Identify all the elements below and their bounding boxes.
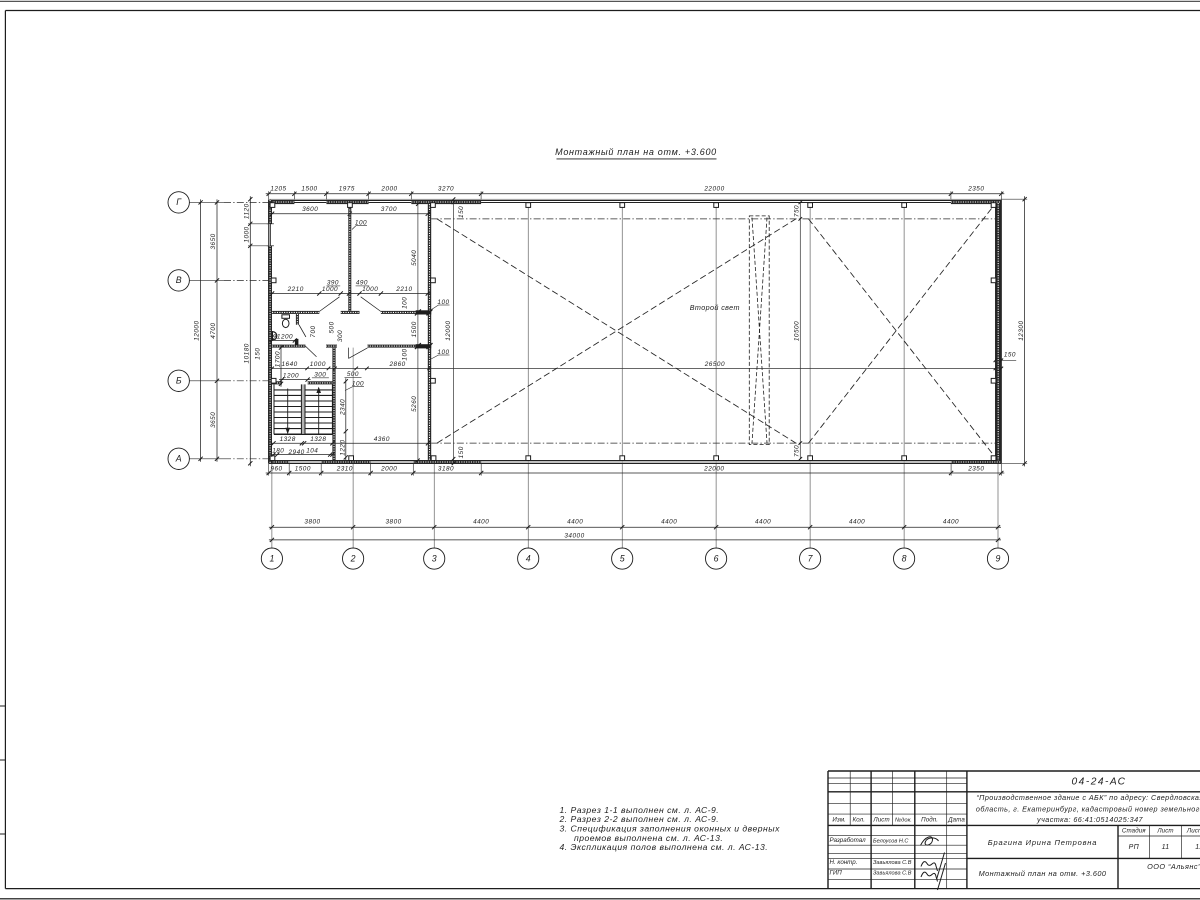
svg-text:2860: 2860 [388,361,405,368]
svg-text:5040: 5040 [411,250,418,266]
svg-text:750: 750 [794,205,801,217]
svg-text:Разработал: Разработал [830,837,867,844]
svg-text:150: 150 [458,446,465,458]
svg-text:3270: 3270 [438,186,454,193]
svg-text:2: 2 [350,553,356,563]
svg-text:4400: 4400 [473,518,489,525]
svg-text:6: 6 [714,553,719,563]
svg-text:4: 4 [526,553,531,563]
svg-text:390: 390 [327,279,339,286]
svg-text:Н. контр.: Н. контр. [830,859,858,866]
svg-text:1000: 1000 [362,286,378,293]
svg-text:100: 100 [401,348,408,360]
svg-text:1500: 1500 [301,186,317,193]
svg-text:100: 100 [437,349,449,356]
svg-text:100: 100 [352,380,364,387]
svg-text:1120: 1120 [243,203,250,219]
svg-text:1205: 1205 [270,186,286,193]
svg-text:Белоусов Н.С: Белоусов Н.С [873,838,909,844]
svg-text:2940: 2940 [287,449,304,456]
svg-text:2340: 2340 [339,399,346,416]
svg-text:Дата: Дата [947,817,965,824]
svg-text:150: 150 [458,206,465,218]
svg-text:Монтажный план на отм. +3.600: Монтажный план на отм. +3.600 [555,147,717,157]
svg-text:34000: 34000 [564,533,584,540]
svg-text:1: 1 [269,553,274,563]
svg-text:2350: 2350 [967,466,984,473]
svg-text:4360: 4360 [374,436,390,443]
svg-text:РП: РП [1129,844,1140,851]
svg-text:область, г. Екатеринбург, када: область, г. Екатеринбург, кадастровый но… [976,805,1200,814]
svg-text:1220: 1220 [339,439,346,455]
svg-text:1000: 1000 [310,361,326,368]
svg-text:4400: 4400 [661,518,677,525]
svg-text:4400: 4400 [567,518,583,525]
svg-text:150: 150 [255,348,262,360]
svg-text:2000: 2000 [380,186,397,193]
svg-text:3800: 3800 [304,518,320,525]
svg-text:2210: 2210 [287,286,304,293]
svg-text:2350: 2350 [967,186,984,193]
svg-text:ГИП: ГИП [830,870,843,877]
svg-text:Стадия: Стадия [1122,827,1146,834]
svg-text:3: 3 [432,553,437,563]
svg-text:9: 9 [996,553,1001,563]
svg-text:1640: 1640 [281,361,297,368]
svg-text:100: 100 [401,297,408,309]
svg-text:8: 8 [902,553,907,563]
svg-text:Монтажный план на отм. +3.600: Монтажный план на отм. +3.600 [979,869,1107,878]
svg-text:“Производственное здание с АБК: “Производственное здание с АБК” по адрес… [976,793,1200,802]
svg-text:Лист: Лист [872,817,889,824]
svg-text:10180: 10180 [243,343,250,363]
svg-text:Завьялова С.В: Завьялова С.В [873,871,912,877]
svg-text:2310: 2310 [336,466,353,473]
svg-text:500: 500 [328,321,335,333]
svg-text:Подп.: Подп. [921,817,938,824]
svg-text:3600: 3600 [302,206,318,213]
svg-text:104: 104 [306,447,318,454]
svg-text:700: 700 [310,325,317,337]
svg-text:Второй свет: Второй свет [690,303,740,312]
svg-text:3800: 3800 [385,518,401,525]
svg-text:№док.: №док. [895,817,912,823]
svg-text:3700: 3700 [381,206,397,213]
svg-text:2000: 2000 [380,466,397,473]
svg-text:12000: 12000 [445,320,452,340]
svg-text:11: 11 [1162,844,1170,851]
svg-text:10500: 10500 [794,321,801,341]
svg-text:Завьялова С.В: Завьялова С.В [873,860,912,866]
svg-text:1700: 1700 [274,351,281,367]
svg-text:4400: 4400 [943,518,959,525]
svg-text:ООО “Альянс”: ООО “Альянс” [1147,862,1200,871]
svg-text:4400: 4400 [755,518,771,525]
svg-text:960: 960 [270,466,282,473]
svg-text:1200: 1200 [283,373,299,380]
svg-text:5: 5 [620,553,625,563]
svg-text:04-24-АС: 04-24-АС [1071,776,1126,787]
svg-text:4. Экспликация полов выполнена: 4. Экспликация полов выполнена см. л. АС… [560,842,769,852]
svg-text:3180: 3180 [438,466,454,473]
svg-text:22000: 22000 [703,466,724,473]
svg-text:150: 150 [1004,352,1016,359]
svg-text:1328: 1328 [310,436,326,443]
svg-text:100: 100 [437,299,449,306]
svg-text:1328: 1328 [280,436,296,443]
svg-text:Изм.: Изм. [832,817,846,824]
svg-text:Лист: Лист [1156,827,1173,834]
svg-text:5260: 5260 [411,396,418,412]
svg-text:490: 490 [356,279,368,286]
svg-text:300: 300 [337,330,344,342]
svg-text:12: 12 [1195,844,1200,851]
svg-text:1200: 1200 [277,334,293,341]
svg-text:22000: 22000 [703,186,724,193]
svg-text:1975: 1975 [339,186,355,193]
svg-text:А: А [175,454,182,464]
svg-text:Б: Б [176,376,182,386]
svg-text:Кол.: Кол. [853,817,866,824]
svg-text:В: В [176,275,182,285]
svg-text:участка: 66:41:0514025:347: участка: 66:41:0514025:347 [1036,815,1143,824]
svg-text:4400: 4400 [849,518,865,525]
svg-text:100: 100 [355,219,367,226]
svg-text:750: 750 [794,445,801,457]
svg-text:12300: 12300 [1018,320,1025,340]
svg-text:500: 500 [347,371,359,378]
svg-text:1000: 1000 [243,226,250,242]
svg-text:180: 180 [272,447,284,454]
svg-text:3650: 3650 [210,412,217,428]
svg-text:12000: 12000 [193,320,200,340]
svg-text:2210: 2210 [395,286,412,293]
svg-text:Брагина Ирина Петровна: Брагина Ирина Петровна [988,838,1097,847]
svg-text:1500: 1500 [295,466,311,473]
svg-text:1000: 1000 [322,286,338,293]
svg-text:26500: 26500 [704,361,725,368]
svg-text:1500: 1500 [411,321,418,337]
svg-text:3650: 3650 [210,233,217,249]
svg-text:4700: 4700 [210,322,217,338]
svg-text:Листов: Листов [1186,827,1200,834]
